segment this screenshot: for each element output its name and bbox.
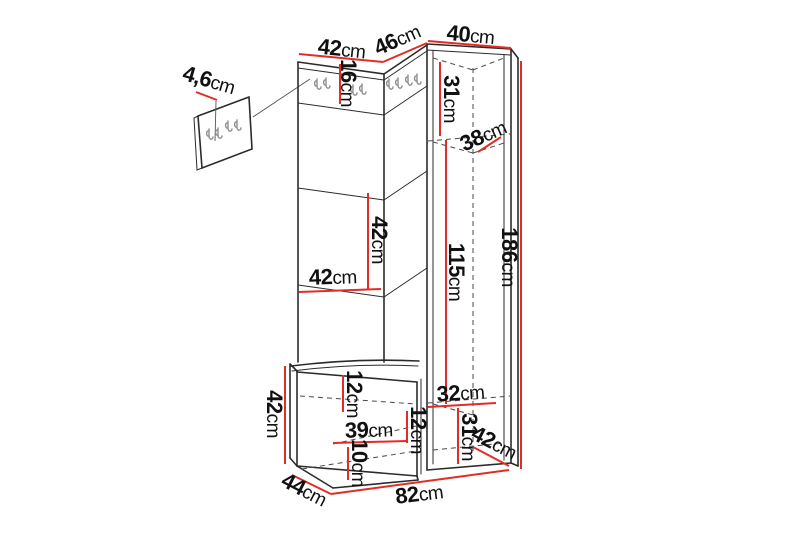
coat-hook-icon bbox=[315, 78, 330, 89]
dimension-label-top-mid-width: 46cm bbox=[370, 18, 424, 60]
dimension-label-drawer-bottom-height: 10cm bbox=[347, 439, 372, 487]
coat-hook-icon bbox=[406, 74, 421, 85]
dimension-label-mid-panel-width: 42cm bbox=[308, 263, 357, 290]
dimension-label-hook-panel-height: 16cm bbox=[336, 59, 361, 107]
inset-pointer-line bbox=[253, 79, 310, 117]
dimension-label-top-right-width: 40cm bbox=[446, 20, 496, 49]
dimension-label-cab-bottom-width: 32cm bbox=[436, 378, 485, 406]
coat-hook-icon bbox=[207, 128, 222, 139]
dimension-labels: 42cm 46cm 40cm 16cm 4,6cm 31cm 38cm 115c… bbox=[180, 18, 522, 511]
coat-hook-icon bbox=[387, 78, 402, 89]
dimension-label-drawer-top-height: 12cm bbox=[342, 370, 367, 418]
dimension-label-bench-height: 42cm bbox=[262, 390, 287, 438]
dimension-label-cab-top-height: 31cm bbox=[439, 75, 464, 123]
furniture-dimension-diagram: 42cm 46cm 40cm 16cm 4,6cm 31cm 38cm 115c… bbox=[0, 0, 800, 533]
dimension-label-cab-mid-height: 115cm bbox=[444, 243, 469, 301]
dimension-label-panel-thickness: 4,6cm bbox=[180, 60, 238, 99]
dimension-label-drawer-mid-height: 12cm bbox=[406, 406, 431, 454]
dimension-label-mid-panel-height: 42cm bbox=[367, 216, 392, 264]
dimension-label-total-height: 186cm bbox=[497, 227, 522, 287]
coat-hooks bbox=[315, 74, 421, 95]
dimension-label-bench-depth: 44cm bbox=[277, 467, 331, 511]
diagram-page: 42cm 46cm 40cm 16cm 4,6cm 31cm 38cm 115c… bbox=[0, 0, 800, 533]
coat-hook-icon bbox=[226, 120, 241, 131]
